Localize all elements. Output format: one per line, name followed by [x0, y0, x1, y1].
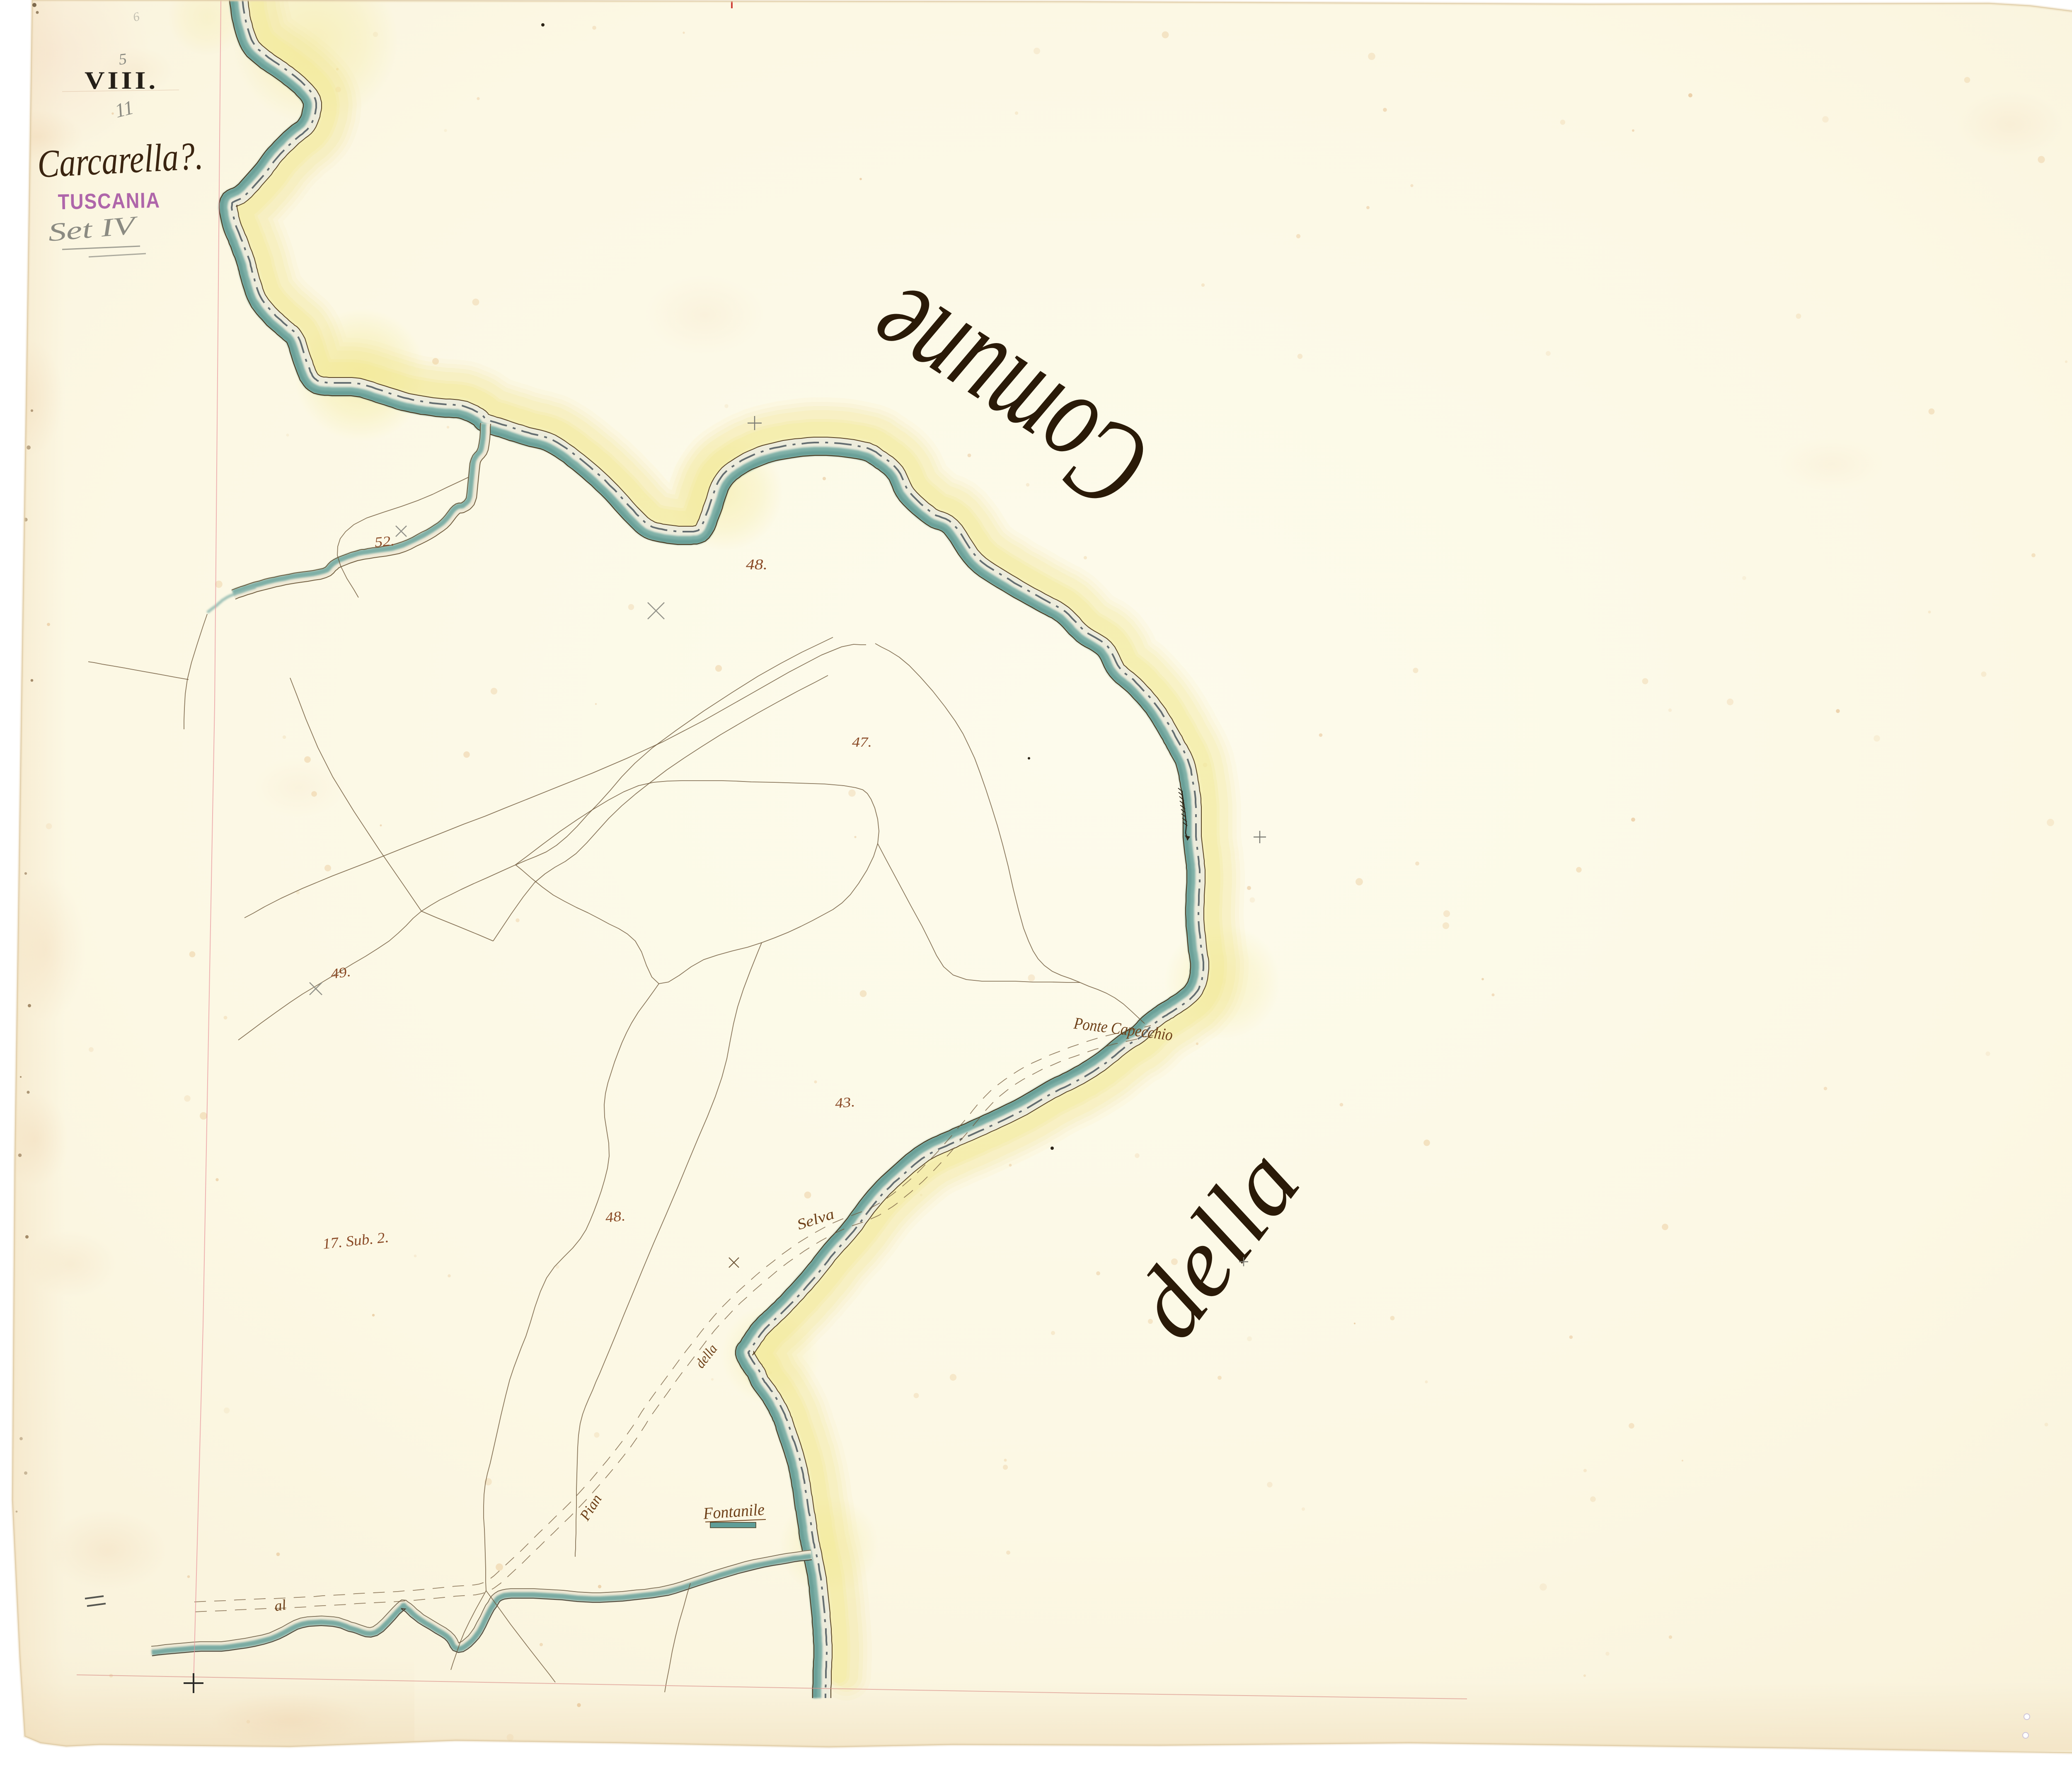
svg-text:52.: 52.: [374, 533, 395, 550]
svg-text:49.: 49.: [330, 964, 352, 982]
svg-text:TUSCANIA: TUSCANIA: [58, 189, 160, 214]
svg-text:VIII.: VIII.: [85, 67, 158, 94]
svg-text:48.: 48.: [746, 556, 767, 573]
svg-text:al: al: [274, 1596, 287, 1614]
svg-text:43.: 43.: [834, 1094, 855, 1111]
svg-text:48.: 48.: [605, 1208, 626, 1226]
svg-text:Carcarella?.: Carcarella?.: [36, 133, 204, 186]
svg-text:47.: 47.: [852, 735, 872, 750]
